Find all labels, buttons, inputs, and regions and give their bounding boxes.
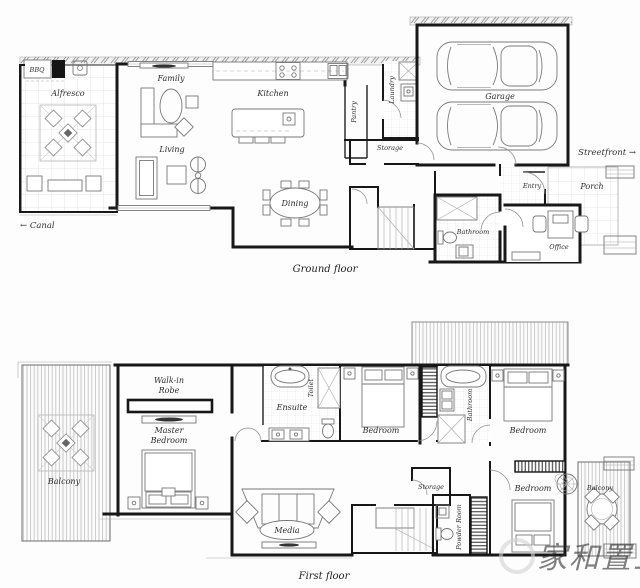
bbq-label: BBQ — [29, 66, 46, 74]
laundry: Laundry — [383, 61, 418, 138]
ensuite: Ensuite Toilet — [264, 366, 340, 441]
office-label: Office — [549, 243, 569, 251]
ensuite-label: Ensuite — [276, 403, 308, 412]
stool-icon — [239, 137, 253, 143]
porch-label: Porch — [579, 182, 603, 191]
balcony-right-label: Balcony — [586, 484, 613, 492]
garage: Garage — [417, 25, 568, 165]
media-label: Media — [273, 526, 300, 535]
bed-icon — [142, 450, 195, 508]
streetfront-label: Streetfront → — [578, 148, 636, 158]
bed-icon — [362, 367, 404, 427]
side-table-icon — [186, 96, 198, 108]
car-icon — [437, 102, 557, 150]
dining-label: Dining — [281, 199, 309, 208]
storage-ground: Storage — [345, 140, 418, 164]
walk-in-robe-label-2: Robe — [158, 386, 180, 395]
living-label: Living — [158, 145, 184, 154]
ground-floor-caption: Ground floor — [293, 264, 359, 275]
first-floor-caption: First floor — [298, 571, 351, 582]
bedroom-mid-label: Bedroom — [362, 426, 400, 435]
master-bedroom-label-2: Bedroom — [150, 436, 188, 445]
kitchen-label: Kitchen — [256, 89, 288, 98]
alfresco-label: Alfresco — [50, 89, 84, 98]
nightstand-icon — [407, 368, 418, 379]
roof-below — [412, 322, 568, 366]
wardrobe-hatch — [515, 461, 565, 472]
robe-hatch — [471, 497, 487, 554]
bathroom-ground: Bathroom — [435, 195, 500, 262]
bathroom-first: Bathroom — [422, 366, 490, 443]
storage-label: Storage — [377, 144, 403, 152]
dining: Dining — [263, 181, 327, 226]
door-arc — [490, 470, 510, 490]
family-room: Family — [140, 63, 198, 137]
laundry-label: Laundry — [388, 76, 396, 105]
bathtub-icon — [441, 366, 486, 387]
coffee-table-icon — [160, 89, 182, 123]
car-icon — [437, 42, 557, 90]
pantry-label: Pantry — [350, 101, 358, 124]
balcony-left: Balcony — [22, 365, 110, 541]
nightstand-icon — [344, 368, 355, 379]
pantry: Pantry — [345, 85, 367, 158]
storage-first-label: Storage — [418, 483, 444, 491]
bedroom-bottom-label: Bedroom — [514, 484, 552, 493]
nightstand-icon — [553, 370, 564, 381]
floor-plan-drawing: Alfresco BBQ Family — [0, 0, 640, 588]
living-room: Living — [136, 145, 206, 199]
office: Office — [505, 205, 588, 262]
chair-icon — [533, 216, 546, 232]
wardrobe-icon — [128, 400, 212, 412]
powder-room-label: Powder Room — [455, 504, 463, 551]
bathroom-first-label: Bathroom — [466, 389, 474, 423]
nightstand-icon — [196, 497, 208, 509]
toilet-icon — [438, 231, 443, 244]
stool-icon — [271, 137, 285, 143]
canal-label: ← Canal — [20, 221, 55, 231]
sofa-icon — [141, 124, 177, 137]
toilet-icon — [436, 528, 441, 540]
balcony-left-label: Balcony — [47, 477, 81, 486]
bathroom-label: Bathroom — [456, 228, 490, 236]
master-suite: Walk-in Robe Master Bedroom — [128, 376, 261, 509]
double-door — [235, 428, 261, 441]
media-room: Media — [236, 489, 341, 548]
bedroom-right: Bedroom — [492, 369, 564, 435]
ground-floor-plan: Alfresco BBQ Family — [20, 17, 636, 275]
outdoor-chair-icon — [27, 176, 42, 191]
family-label: Family — [157, 74, 185, 83]
garage-label: Garage — [485, 92, 515, 101]
storage-first: Storage — [395, 468, 450, 505]
stairs-first — [352, 505, 437, 553]
table-icon — [167, 166, 186, 184]
stairs-ground — [350, 187, 414, 249]
stool-icon — [255, 137, 269, 143]
watermark-text: 家和置业 — [537, 541, 640, 576]
armchair-icon — [175, 118, 193, 136]
robe-hatch — [422, 367, 437, 417]
bbq-grill-icon — [52, 60, 65, 78]
chair-icon — [575, 216, 588, 232]
walk-in-robe-label-1: Walk-in — [154, 376, 184, 385]
outdoor-chair-icon — [86, 176, 101, 191]
outdoor-bench-icon — [48, 180, 82, 191]
entry-label: Entry — [522, 182, 542, 190]
nightstand-icon — [128, 497, 140, 509]
bed-icon — [504, 369, 552, 421]
toilet-label: Toilet — [307, 378, 315, 397]
master-bedroom-label-1: Master — [154, 426, 185, 435]
nightstand-icon — [492, 370, 503, 381]
floor-plan-page: Alfresco BBQ Family — [0, 0, 640, 588]
alfresco-area: Alfresco BBQ — [20, 60, 117, 215]
kitchen: Kitchen — [213, 62, 348, 143]
bedroom-right-label: Bedroom — [509, 426, 547, 435]
toilet-icon — [322, 419, 334, 424]
